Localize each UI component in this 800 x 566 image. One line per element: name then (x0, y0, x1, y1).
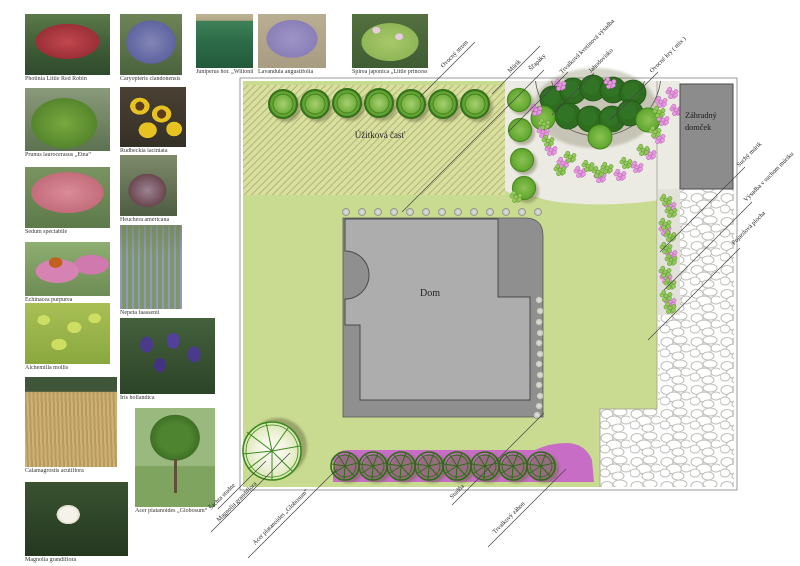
medium-tree (588, 125, 612, 149)
stepping-stone (535, 296, 542, 303)
callout-right-suchy-murik: Suchý múrik (735, 140, 763, 168)
stepping-stone (535, 339, 542, 346)
stepping-stone (470, 208, 477, 215)
stepping-stone (536, 329, 543, 336)
stepping-stone (536, 392, 543, 399)
stepping-stone (358, 208, 365, 215)
callout-bottom-trvalkovy-zahon: Trvalkový záhon (491, 500, 527, 536)
stepping-stone (536, 307, 543, 314)
callout-top-trvalkova-vysadba: Trvalková kvetinová výsadba (558, 18, 616, 76)
flagstone-area (600, 409, 658, 487)
stepping-stone (486, 208, 493, 215)
landscape-plan-document: Photinia Little Red Robin Caryopteris cl… (0, 0, 800, 566)
flagstone-area (680, 189, 734, 315)
callout-top-ovocne-kry: Ovocné kry ( mix ) (648, 35, 687, 74)
stepping-stone (536, 371, 543, 378)
stepping-stone (518, 208, 525, 215)
stepping-stone (536, 350, 543, 357)
callout-bottom-acer: Acer platanoides „Globosum“ (251, 488, 310, 547)
stepping-stone (535, 318, 542, 325)
flagstone-area (658, 315, 734, 487)
stepping-stone (534, 208, 541, 215)
callout-top-slapaky: Šľapáky (527, 51, 548, 72)
stepping-stone (438, 208, 445, 215)
stepping-stone (390, 208, 397, 215)
shed-label-line2: domček (685, 123, 712, 132)
callout-top-murik: Múrik (506, 58, 523, 75)
house-label: Dom (420, 288, 440, 299)
stepping-stone (535, 360, 542, 367)
stepping-stone (502, 208, 509, 215)
utility-area-label: Úžitková časť (355, 130, 406, 140)
stepping-stone (342, 208, 349, 215)
stepping-stone (406, 208, 413, 215)
garden-shed (680, 84, 733, 189)
stepping-stone (535, 402, 542, 409)
stepping-stone (535, 381, 542, 388)
shed-label-line1: Záhradný (685, 111, 718, 120)
stepping-stone (422, 208, 429, 215)
stepping-stone (454, 208, 461, 215)
stepping-stone (374, 208, 381, 215)
callout-top-ovocny-strom: Ovocný strom (439, 39, 469, 69)
garden-plan: Úžitková časť Záhradný domček Dom (0, 0, 800, 566)
